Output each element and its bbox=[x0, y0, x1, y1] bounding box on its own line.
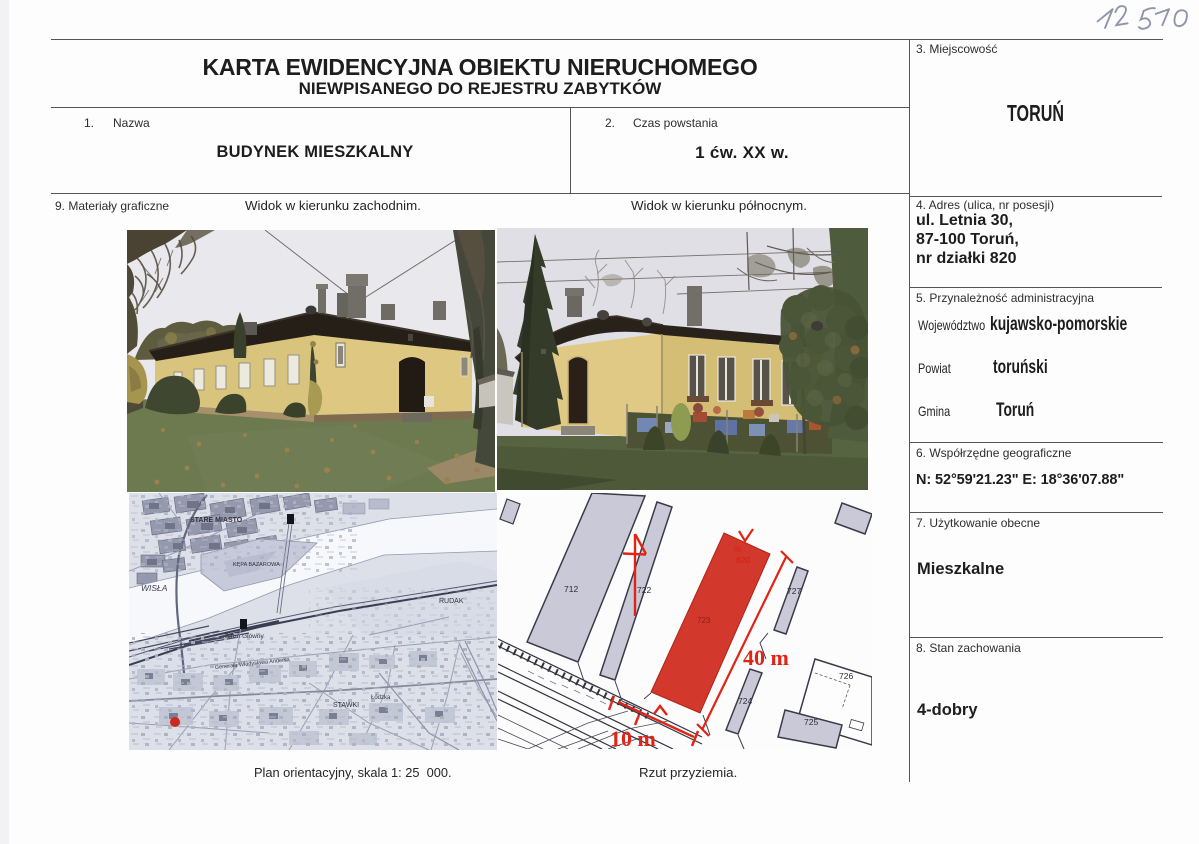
svg-text:RUDAK: RUDAK bbox=[439, 598, 464, 605]
svg-text:724: 724 bbox=[738, 696, 752, 706]
svg-text:WISŁA: WISŁA bbox=[141, 583, 168, 593]
svg-text:726: 726 bbox=[839, 671, 853, 681]
svg-text:Toruń Główny: Toruń Główny bbox=[224, 633, 264, 640]
svg-text:725: 725 bbox=[804, 717, 818, 727]
svg-text:KĘPA BAZAROWA: KĘPA BAZAROWA bbox=[233, 562, 280, 568]
svg-text:722: 722 bbox=[637, 585, 651, 595]
svg-text:10 m: 10 m bbox=[610, 726, 656, 749]
svg-text:727: 727 bbox=[787, 586, 801, 596]
svg-text:723: 723 bbox=[697, 616, 711, 625]
svg-text:STAWKI: STAWKI bbox=[333, 702, 359, 709]
svg-text:STARE MIASTO: STARE MIASTO bbox=[190, 517, 243, 524]
svg-text:Łódzka: Łódzka bbox=[371, 695, 391, 701]
svg-text:40 m: 40 m bbox=[743, 645, 789, 670]
svg-text:820: 820 bbox=[736, 555, 750, 565]
svg-text:712: 712 bbox=[564, 584, 578, 594]
